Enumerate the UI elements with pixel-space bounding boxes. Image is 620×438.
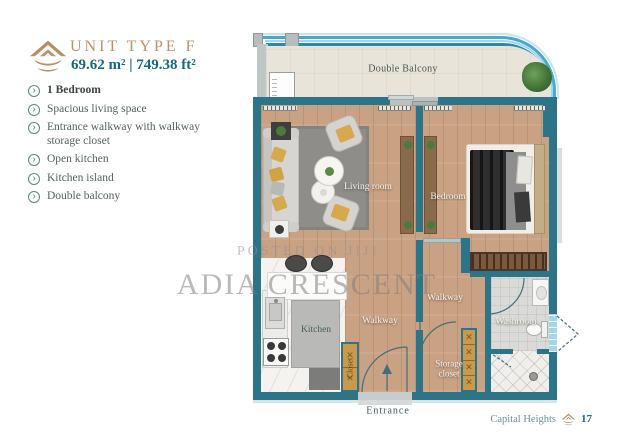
entrance-arrow-icon — [382, 364, 392, 374]
washroom-label: Washroom — [496, 317, 537, 327]
brand-name: Capital Heights — [490, 414, 556, 425]
closet-label: Closet — [346, 358, 355, 378]
storage-closet-label: Storage closet — [425, 359, 473, 380]
living-room-label: Living room — [344, 182, 392, 192]
watermark-line1: POSTED ON JIJI — [237, 244, 379, 260]
page-footer: Capital Heights 17 — [440, 412, 592, 426]
bedroom-label: Bedroom — [430, 192, 465, 202]
balcony-label: Double Balcony — [368, 64, 437, 75]
walkway-center-label: Walkway — [362, 316, 398, 326]
page-number: 17 — [581, 413, 592, 425]
capital-heights-logo-small-icon — [561, 412, 576, 426]
door-swing-overlay — [0, 0, 620, 438]
floor-plan: ✕ ✕ Closet ✕ ✕ ✕ ✕ — [0, 0, 620, 438]
watermark-line2: ADIA CRESCENT — [177, 268, 437, 302]
entrance-label: Entrance — [366, 406, 410, 417]
kitchen-label: Kitchen — [301, 325, 331, 335]
brochure-page: { "header": { "unit_title": "UNIT TYPE F… — [0, 0, 620, 438]
